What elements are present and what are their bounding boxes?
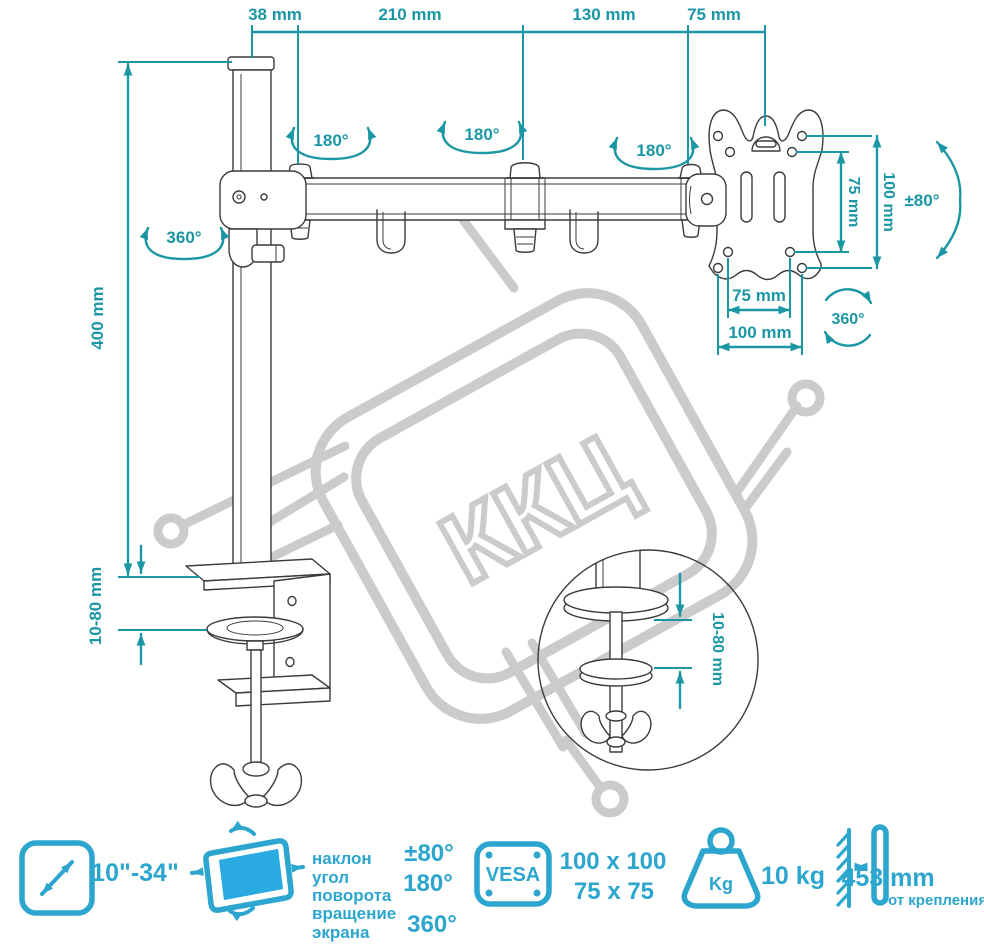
- dim-label-tilt: ±80°: [904, 191, 939, 210]
- vesa-icon-label: VESA: [486, 864, 540, 886]
- dim-label-vesa-75-h: 75 mm: [732, 286, 786, 305]
- weight-value: 10 kg: [761, 862, 825, 890]
- weight-icon: Kg: [684, 830, 757, 906]
- screen-size-icon: [22, 843, 92, 913]
- pole: [233, 70, 271, 569]
- arm-joint-bolt: [510, 163, 540, 178]
- dim-label-clamp-range: 10-80 mm: [86, 567, 105, 645]
- mount-drawing: [186, 57, 823, 807]
- vesa-size-2: 75 x 75: [574, 878, 654, 905]
- rotation-label-pole-360: 360°: [166, 228, 201, 247]
- detail-top-disc: [564, 587, 668, 613]
- legend-row: 10"-34" наклон угол поворота вращение эк…: [22, 827, 984, 942]
- swivel-value: 180°: [403, 870, 453, 897]
- watermark-node-circle: [792, 384, 820, 412]
- tilt-value: ±80°: [404, 840, 453, 867]
- dim-label-130mm: 130 mm: [572, 5, 635, 24]
- tension-knob: [252, 245, 284, 262]
- tilt-caption-line4: вращение: [312, 904, 396, 923]
- rotation-label-180-1: 180°: [313, 131, 348, 150]
- tilt-caption-line2: угол: [312, 868, 349, 887]
- dim-label-400mm: 400 mm: [88, 286, 107, 349]
- watermark-node-circle: [158, 518, 184, 544]
- tilt-caption-line5: экрана: [312, 923, 370, 942]
- weight-icon-label: Kg: [709, 874, 733, 894]
- tilt-caption-line3: поворота: [312, 886, 392, 905]
- rotate-value: 360°: [407, 911, 457, 938]
- tilt-rotate-icon: [192, 828, 303, 914]
- rotation-label-plate-360: 360°: [831, 311, 864, 328]
- arm-joint-nut: [514, 229, 536, 252]
- pole-bracket: [229, 229, 284, 267]
- rotation-label-180-3: 180°: [636, 141, 671, 160]
- dim-label-detail-range: 10-80 mm: [709, 612, 726, 686]
- pole-top-cap: [228, 57, 274, 70]
- dim-label-vesa-75-v: 75 mm: [845, 177, 862, 228]
- screen-size-value: 10"-34": [91, 859, 179, 887]
- tilt-caption-line1: наклон: [312, 849, 372, 868]
- vesa-icon: VESA: [477, 844, 549, 904]
- technical-drawing-page: ККЦ: [0, 0, 984, 944]
- detail-lower-disc: [580, 659, 652, 679]
- dim-label-210mm: 210 mm: [378, 5, 441, 24]
- clamp-screw-rod: [251, 650, 261, 766]
- dim-label-38mm: 38 mm: [248, 5, 302, 24]
- distance-caption: от крепления: [888, 892, 984, 909]
- desk-clamp: [186, 559, 330, 807]
- dim-label-vesa-100-h: 100 mm: [728, 323, 791, 342]
- drawing-canvas: ККЦ: [0, 0, 984, 944]
- rotation-label-180-2: 180°: [464, 125, 499, 144]
- dim-label-vesa-100-v: 100 mm: [880, 172, 897, 232]
- watermark-node-circle: [596, 785, 624, 813]
- vesa-size-1: 100 x 100: [560, 848, 667, 875]
- arm-end-cap: [686, 174, 726, 226]
- distance-value: 453 mm: [841, 864, 934, 892]
- dim-label-75mm-top: 75 mm: [687, 5, 741, 24]
